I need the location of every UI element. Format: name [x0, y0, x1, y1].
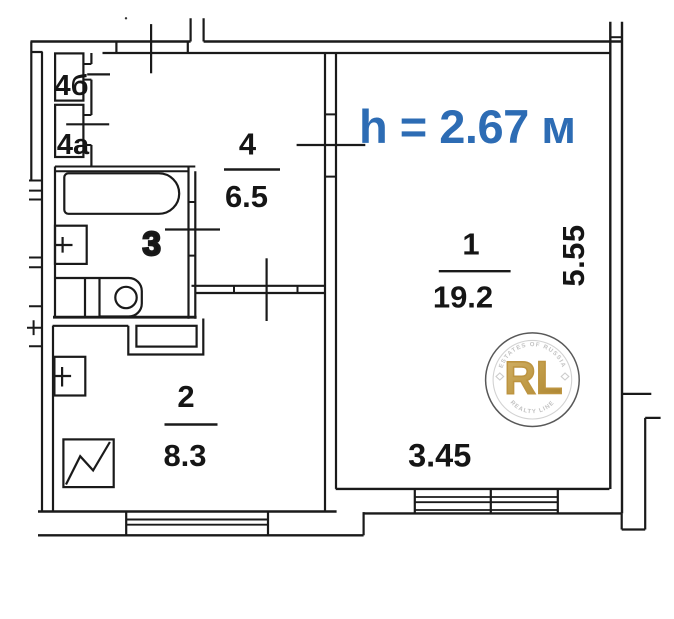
svg-text:8.3: 8.3: [163, 438, 206, 473]
svg-text:1: 1: [462, 227, 479, 262]
svg-text:h = 2.67 м: h = 2.67 м: [359, 100, 576, 153]
svg-text:3: 3: [143, 225, 161, 262]
svg-text:3.45: 3.45: [408, 438, 471, 474]
svg-text:4б: 4б: [54, 70, 88, 102]
svg-text:5.55: 5.55: [556, 224, 591, 286]
svg-text:19.2: 19.2: [433, 280, 493, 315]
svg-text:6.5: 6.5: [225, 179, 268, 214]
svg-text:RL: RL: [504, 351, 562, 403]
svg-text:2: 2: [177, 379, 194, 414]
svg-text:4: 4: [239, 127, 257, 162]
